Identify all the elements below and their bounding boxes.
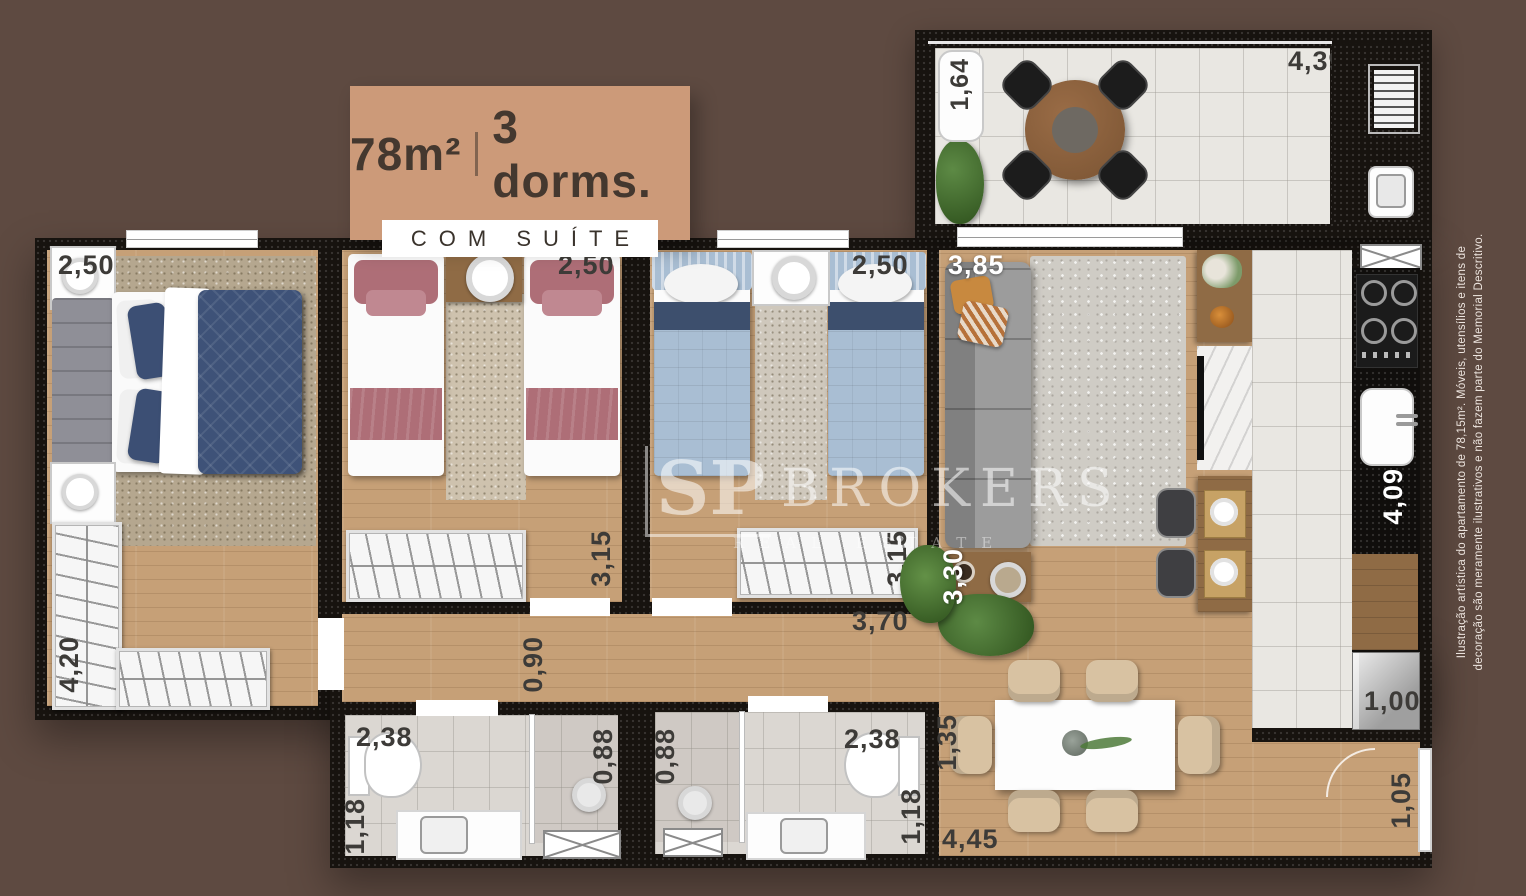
bedroom2-bed-right-throw	[526, 388, 618, 440]
floorplan-canvas: 1,64 4,39 4,20 2,50 2,50 3,15	[0, 0, 1526, 896]
title-badge: 78m² 3 dorms. COM SUÍTE	[350, 86, 690, 240]
bath1-basin	[420, 816, 468, 854]
suite-window	[127, 231, 257, 247]
dining-chair-right	[1178, 716, 1220, 774]
dim-bath1-shower: 0,88	[590, 728, 617, 785]
disclaimer-line-2: decoração são meramente ilustrativos e n…	[1471, 107, 1488, 797]
living-shelf-fruit	[1210, 306, 1234, 328]
bar-plate-1	[1210, 498, 1238, 526]
living-tv-panel	[1197, 346, 1252, 470]
living-shelf-flowers	[1202, 254, 1242, 288]
bath2-basin	[780, 818, 828, 854]
bedroom2-closet	[346, 530, 526, 602]
bedroom3-fan	[772, 256, 816, 300]
cooktop-burner-3	[1361, 318, 1387, 344]
suite-wardrobe-horizontal	[116, 648, 270, 710]
bath2-shaft	[663, 828, 723, 857]
kitchen-floor	[1252, 250, 1352, 728]
suite-duvet	[198, 290, 302, 474]
bedroom2-bed-left-throw	[350, 388, 442, 440]
bath1-shaft	[543, 830, 621, 859]
bedroom3-bed-right-band	[828, 302, 924, 330]
badge-title-row: 78m² 3 dorms.	[350, 100, 690, 208]
grill-icon	[1368, 64, 1420, 134]
dim-living-depth: 3,30	[940, 548, 967, 605]
dim-kitchen-fridge: 1,00	[1364, 688, 1421, 715]
kitchen-sink-faucet	[1396, 414, 1418, 418]
cooktop-burner-4	[1391, 318, 1417, 344]
suite-door-opening	[318, 618, 344, 690]
suite-bed-headboard	[52, 298, 114, 468]
bath2-shower-drain	[678, 786, 712, 820]
dim-kitchen-length: 4,09	[1380, 468, 1407, 525]
bath2-toilet-tank	[898, 736, 920, 796]
bedroom3-bed-left-duvet	[654, 330, 750, 476]
balcony-planter	[936, 140, 984, 224]
dim-balcony-depth: 1,64	[948, 58, 973, 111]
bar-stool-1	[1158, 490, 1194, 536]
dim-bath1-width: 2,38	[356, 724, 413, 751]
living-tv	[1197, 356, 1204, 460]
balcony-railing-line	[928, 41, 1332, 44]
bedroom2-rug	[446, 294, 526, 500]
balcony-slider-opening	[958, 228, 1182, 246]
balcony-table-tray	[1052, 107, 1098, 153]
bath2-door-opening	[748, 696, 828, 712]
bedroom3-window	[718, 231, 848, 247]
bar-plate-2	[1210, 558, 1238, 586]
dim-bedroom2-depth: 3,15	[588, 530, 615, 587]
badge-subtitle-bar: COM SUÍTE	[382, 220, 658, 257]
badge-divider	[475, 132, 478, 176]
bath1-shower-partition	[530, 715, 534, 843]
bedroom2-bed-left-cushion	[366, 290, 426, 316]
dim-suite-width: 2,50	[58, 252, 115, 279]
dim-bath1-depth: 1,18	[342, 798, 369, 855]
bath2-shower-partition	[740, 712, 744, 842]
dining-chair-top-1	[1008, 660, 1060, 702]
dim-dining-width: 4,45	[942, 826, 999, 853]
dim-suite-wardrobe: 4,20	[56, 636, 83, 693]
dim-bath2-depth: 1,18	[898, 788, 925, 845]
bedroom2-bed-right-cushion	[542, 290, 602, 316]
dining-chair-top-2	[1086, 660, 1138, 702]
badge-subtitle-label: COM SUÍTE	[399, 226, 641, 252]
cooktop-burner-1	[1361, 280, 1387, 306]
bedroom3-bed-right-duvet	[828, 330, 924, 476]
dim-hall-width: 0,90	[520, 636, 547, 693]
bedroom3-rug	[755, 294, 827, 500]
cooktop-burner-2	[1391, 280, 1417, 306]
dining-chair-bottom-1	[1008, 790, 1060, 832]
badge-dorms-label: 3 dorms.	[492, 100, 690, 208]
dim-bath2-width: 2,38	[844, 726, 901, 753]
kitchen-sink	[1360, 388, 1414, 466]
dim-hall-length: 3,70	[852, 608, 909, 635]
kitchen-base-cabinet	[1352, 554, 1418, 650]
bath1-door-opening	[416, 700, 498, 716]
dim-bedroom3-width: 2,50	[852, 252, 909, 279]
dim-bath2-shower: 0,88	[652, 728, 679, 785]
bedroom2-door-opening	[530, 598, 610, 616]
bedroom2-mirror	[466, 254, 514, 302]
cooktop-knobs	[1362, 352, 1410, 358]
suite-lamp-bottom	[62, 474, 98, 510]
living-decor-plate	[990, 562, 1026, 598]
dining-chair-bottom-2	[1086, 790, 1138, 832]
bedroom3-bed-left-band	[654, 302, 750, 330]
bedroom3-bed-left-pillow	[664, 264, 738, 304]
grill-sink-basin	[1376, 174, 1406, 208]
bar-stool-2	[1158, 550, 1194, 596]
disclaimer-line-1: Ilustração artística do apartamento de 7…	[1454, 107, 1471, 797]
kitchen-upper-cabinet	[1360, 244, 1422, 270]
dim-living-width: 3,85	[948, 252, 1005, 279]
disclaimer-text: Ilustração artística do apartamento de 7…	[1454, 107, 1488, 797]
badge-area-label: 78m²	[350, 127, 461, 181]
dim-dining-depth: 1,35	[934, 714, 961, 771]
hall-floor	[342, 614, 939, 702]
bedroom3-door-opening	[652, 598, 732, 616]
